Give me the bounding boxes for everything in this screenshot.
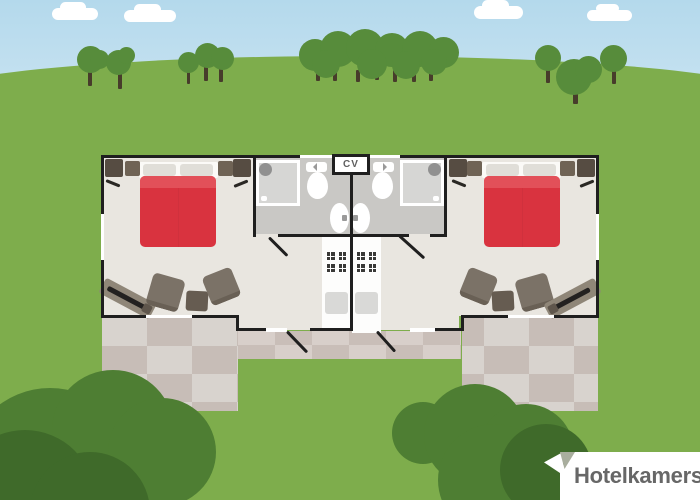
badge-label[interactable]: Hotelkamers: [574, 452, 700, 500]
bushes-layer: [0, 0, 700, 500]
landscape-scene: CV Hotelkamers: [0, 0, 700, 500]
